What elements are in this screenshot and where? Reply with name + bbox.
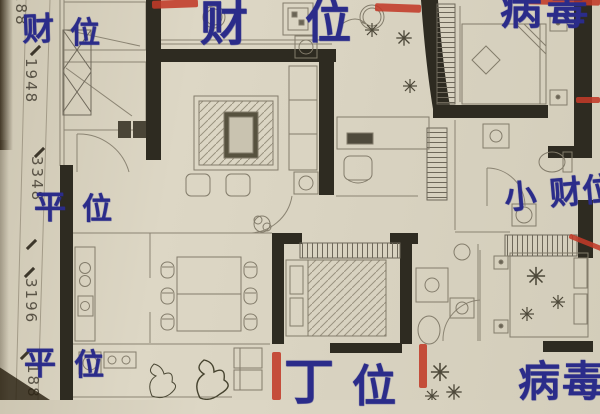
annotation-small-wealth-right: 小 财位: [502, 163, 600, 219]
annotation-neutral-bottom-left-char1: 平: [24, 338, 56, 384]
bathroom-bottom-fixtures: [416, 244, 474, 344]
red-stroke-dingwei: [272, 352, 281, 400]
annotation-wealth-top-center-char1: 财: [200, 0, 248, 54]
kitchen-fixtures: [75, 247, 95, 341]
bedroom-bottomcenter-furniture: [286, 260, 386, 336]
annotation-neutral-mid-left-char2: 位: [82, 184, 112, 228]
annotation-wealth-top-left-char2: 位: [70, 8, 100, 52]
dining-furniture: [161, 257, 257, 331]
annotation-neutral-bottom-left-char2: 位: [74, 340, 104, 384]
floorplan-photo: { "photo": { "paper_color": "#d8d2c0", "…: [0, 0, 600, 400]
dimension-value: 3196: [22, 278, 40, 324]
garden-plants: [425, 363, 462, 400]
annotation-ding-bottom-center-char1: 丁: [284, 342, 334, 414]
photo-edge-shadow-top: [0, 0, 13, 150]
red-stroke-bingdu-bottom: [419, 344, 427, 388]
red-line-right-edge: [576, 97, 600, 103]
annotation-virus-top-right: 病毒: [500, 0, 592, 37]
annotation-wealth-top-left-char1: 财: [21, 3, 55, 50]
annotation-wealth-top-center-char2: 位: [305, 0, 351, 52]
red-underline-top-caiwei: [375, 3, 421, 13]
balcony-items: [79, 348, 262, 399]
bedroom-bottomright-furniture: [494, 253, 588, 337]
annotation-neutral-mid-left-char1: 平: [34, 182, 66, 228]
dimension-value: 1948: [22, 58, 40, 104]
annotation-ding-bottom-center-char2: 位: [352, 350, 396, 414]
photo-edge-shadow-mid: [0, 140, 9, 400]
